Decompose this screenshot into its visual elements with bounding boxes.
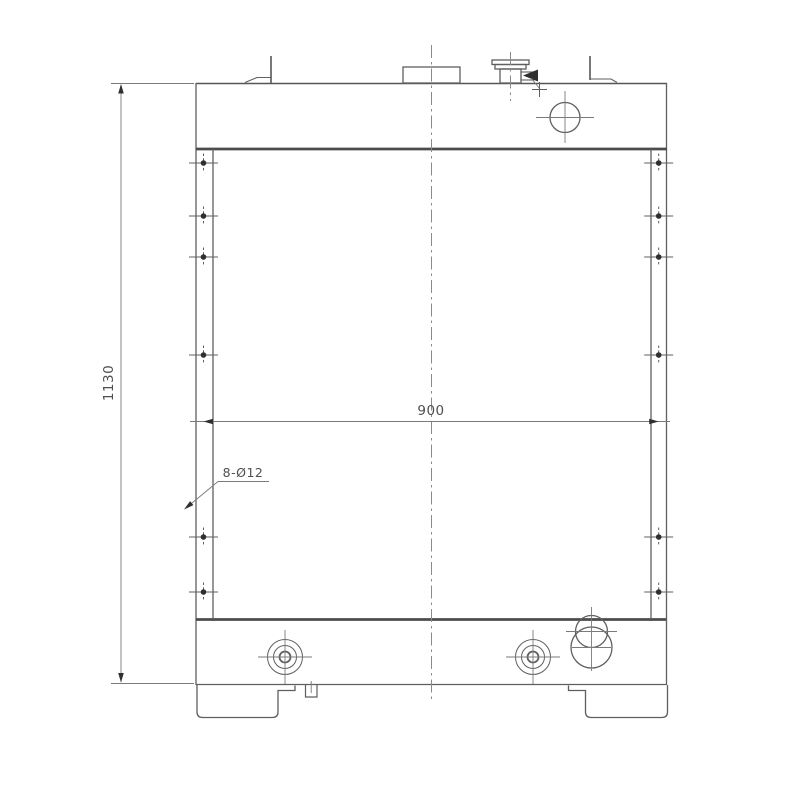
dim-arrow-down (118, 673, 124, 683)
height-dim-label: 1130 (101, 365, 117, 401)
right-lifting-bracket (590, 56, 617, 83)
holes-note-label: 8-Ø12 (223, 465, 264, 480)
bottom-bolt-target-left (258, 630, 312, 684)
bottom-bolt-target-right (506, 630, 560, 684)
right-foot-bracket (569, 685, 668, 718)
leader-arrow (184, 501, 193, 509)
bolt-hole-marker (644, 154, 673, 173)
dim-arrow-left (204, 419, 214, 425)
left-foot-bracket (197, 685, 295, 718)
radiator-technical-drawing: 1130 900 8-Ø12 (0, 0, 800, 800)
bolt-hole-marker (644, 207, 673, 226)
drain-petcock (306, 681, 318, 697)
bolt-hole-marker (644, 583, 673, 602)
right-bracket-gusset (590, 79, 617, 83)
top-tank-inlet-hole (536, 91, 594, 143)
left-bracket-gusset (245, 78, 271, 83)
filler-cap (492, 52, 547, 101)
width-dim-label: 900 (417, 403, 444, 419)
dimension-height-1130: 1130 (101, 84, 194, 684)
bolt-hole-marker (644, 346, 673, 365)
mounting-feet (197, 685, 668, 718)
drain-outlet-boss (566, 607, 617, 671)
filler-cap-flange (495, 65, 526, 70)
drawing-page: 1130 900 8-Ø12 (0, 0, 800, 800)
bolt-hole-marker (644, 248, 673, 267)
dim-arrow-up (118, 84, 124, 94)
dimension-width-900: 900 (190, 403, 670, 424)
top-tank-features (245, 45, 617, 702)
dim-arrow-right (649, 419, 659, 425)
holes-note-leader: 8-Ø12 (184, 465, 269, 510)
left-lifting-bracket (245, 56, 271, 83)
bolt-hole-marker (644, 528, 673, 547)
